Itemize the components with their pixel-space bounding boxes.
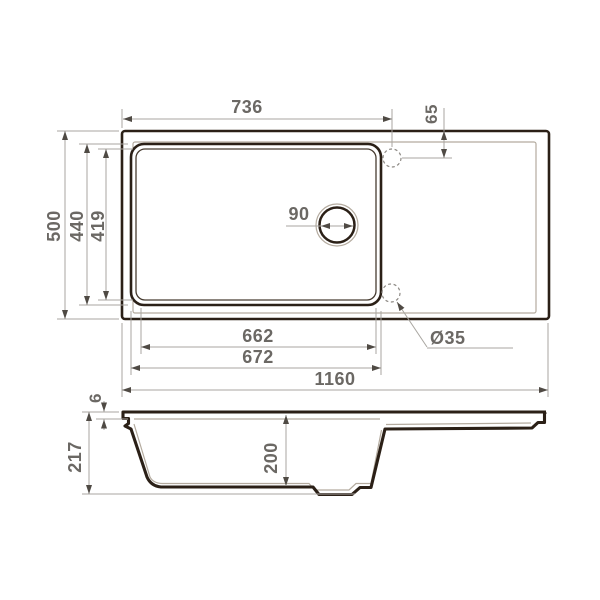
dim-total-height: 217: [65, 412, 89, 494]
dim-label-500: 500: [44, 210, 64, 242]
dim-label-65: 65: [422, 104, 441, 124]
bowl-outline: [131, 144, 381, 305]
dim-label-440: 440: [67, 210, 87, 242]
dim-total-width: 1160: [122, 369, 548, 390]
dim-bowl-outer-width: 672: [131, 347, 381, 368]
dim-label-6: 6: [86, 393, 105, 403]
dim-label-1160: 1160: [314, 369, 355, 389]
top-view: [122, 131, 549, 319]
dim-label-d35: Ø35: [430, 328, 466, 348]
side-profile-outline: [123, 412, 546, 495]
dim-label-200: 200: [261, 442, 281, 474]
sink-dimension-drawing: 736 65 500 440 419 90 662 672 1160 Ø35: [0, 0, 600, 600]
dim-bowl-inner-width: 662: [141, 326, 376, 347]
dim-label-672: 672: [242, 347, 274, 367]
dim-label-419: 419: [88, 210, 108, 242]
dim-label-90: 90: [288, 204, 309, 224]
dim-bowl-inner-depth: 419: [88, 149, 108, 300]
side-view: [123, 412, 546, 495]
extension-lines-side-view: [82, 412, 355, 494]
dim-total-depth: 500: [44, 131, 65, 319]
technical-drawing-page: 736 65 500 440 419 90 662 672 1160 Ø35: [0, 0, 600, 600]
dim-bowl-depth: 200: [261, 415, 286, 486]
dim-bowl-outer-depth: 440: [67, 144, 87, 305]
dim-label-217: 217: [65, 441, 85, 473]
dim-label-736: 736: [231, 97, 263, 117]
dim-faucet-from-left: 736: [123, 97, 392, 119]
dim-label-662: 662: [242, 326, 274, 346]
